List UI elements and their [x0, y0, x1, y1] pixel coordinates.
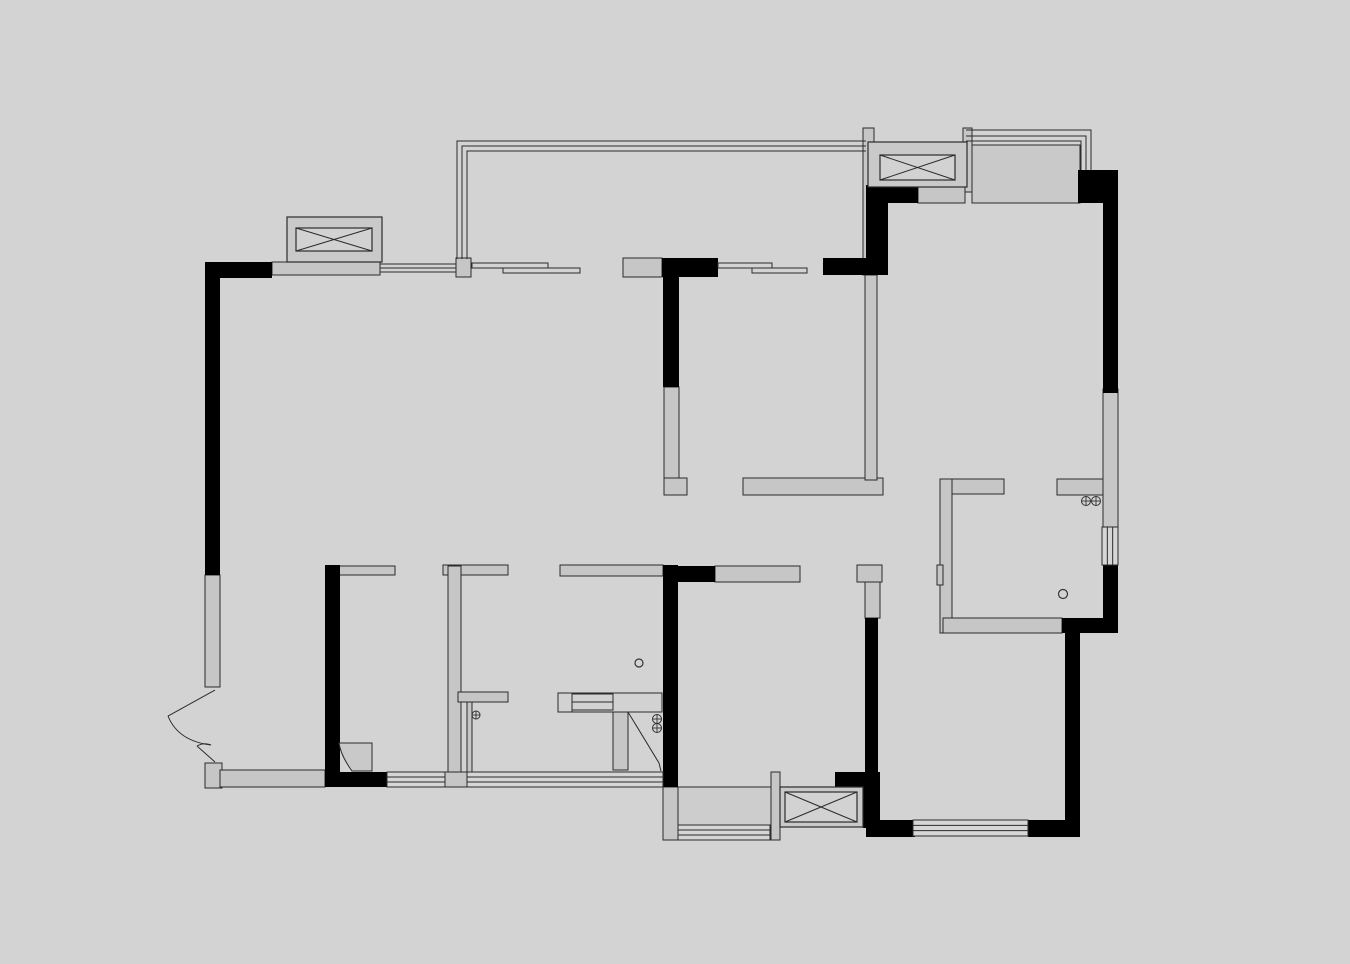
bathroom-fixtures: [558, 693, 662, 712]
pipe-symbol-icon: [1082, 497, 1091, 506]
structural-wall: [663, 277, 679, 387]
window-box-top-left: [287, 217, 382, 262]
window-outline: [678, 825, 770, 840]
window-outline: [387, 772, 445, 787]
partition-wall: [743, 478, 883, 495]
partition-wall: [937, 565, 943, 585]
structural-wall: [325, 565, 340, 780]
window-box-top-right: [868, 142, 967, 187]
structural-wall: [1103, 203, 1118, 393]
partition-wall: [857, 565, 882, 582]
partition-wall: [205, 763, 222, 788]
partition-wall: [771, 772, 780, 840]
partition-wall: [623, 258, 662, 277]
sliding-panel: [503, 268, 580, 273]
window-bottom-1: [387, 772, 445, 787]
partition-wall: [664, 478, 687, 495]
window-bedroom3: [913, 820, 1028, 836]
partition-wall: [1057, 479, 1103, 495]
utility-platform: [972, 145, 1080, 203]
partition-wall: [664, 387, 679, 479]
structural-wall: [663, 565, 678, 787]
window-outline: [913, 820, 1028, 836]
structural-wall: [866, 185, 888, 275]
partition-wall: [272, 262, 380, 275]
partition-wall: [467, 702, 472, 777]
partition-wall: [205, 575, 220, 687]
floor-plan-drawing: [0, 0, 1350, 964]
partition-wall: [445, 772, 467, 787]
pipe-symbol-icon: [472, 711, 480, 719]
window-bottom-2: [467, 772, 663, 787]
structural-wall: [1103, 565, 1118, 618]
structural-wall: [888, 187, 918, 203]
pipe-symbol-icon: [1092, 497, 1101, 506]
structural-wall: [835, 772, 880, 787]
structural-wall: [1078, 170, 1118, 203]
window-right: [1102, 527, 1118, 565]
partition-wall: [943, 618, 1062, 633]
partition-wall: [338, 566, 395, 575]
structural-wall: [205, 262, 220, 575]
partition-wall: [456, 258, 471, 277]
vanity-counter: [558, 693, 572, 712]
window-outline: [467, 772, 663, 787]
structural-wall: [663, 566, 715, 582]
partition-wall: [448, 566, 461, 785]
window-outline: [1102, 527, 1118, 565]
window-box-bottom: [780, 787, 863, 827]
window-balcony: [678, 825, 770, 840]
sliding-panel: [718, 263, 772, 268]
partition-wall: [663, 787, 678, 840]
pipe-symbol-icon: [653, 715, 662, 724]
partition-wall: [865, 582, 880, 618]
partition-wall: [458, 692, 508, 702]
laundry-balcony-floor: [678, 787, 771, 825]
partition-wall: [560, 565, 663, 576]
sliding-panel: [752, 268, 807, 273]
partition-wall: [940, 479, 952, 633]
partition-wall: [865, 275, 877, 480]
partition-wall: [220, 770, 325, 787]
partition-wall: [1103, 389, 1118, 527]
partition-wall: [715, 566, 800, 582]
structural-wall: [1062, 618, 1118, 633]
sliding-panel: [472, 263, 548, 268]
partition-wall: [918, 187, 965, 203]
pipe-symbol-icon: [653, 724, 662, 733]
structural-wall: [662, 258, 718, 277]
structural-wall: [1065, 633, 1080, 837]
floor-plan-canvas: [0, 0, 1350, 964]
structural-wall: [325, 772, 387, 787]
structural-wall: [863, 787, 880, 828]
partition-wall: [613, 712, 628, 770]
structural-wall: [1028, 820, 1080, 837]
